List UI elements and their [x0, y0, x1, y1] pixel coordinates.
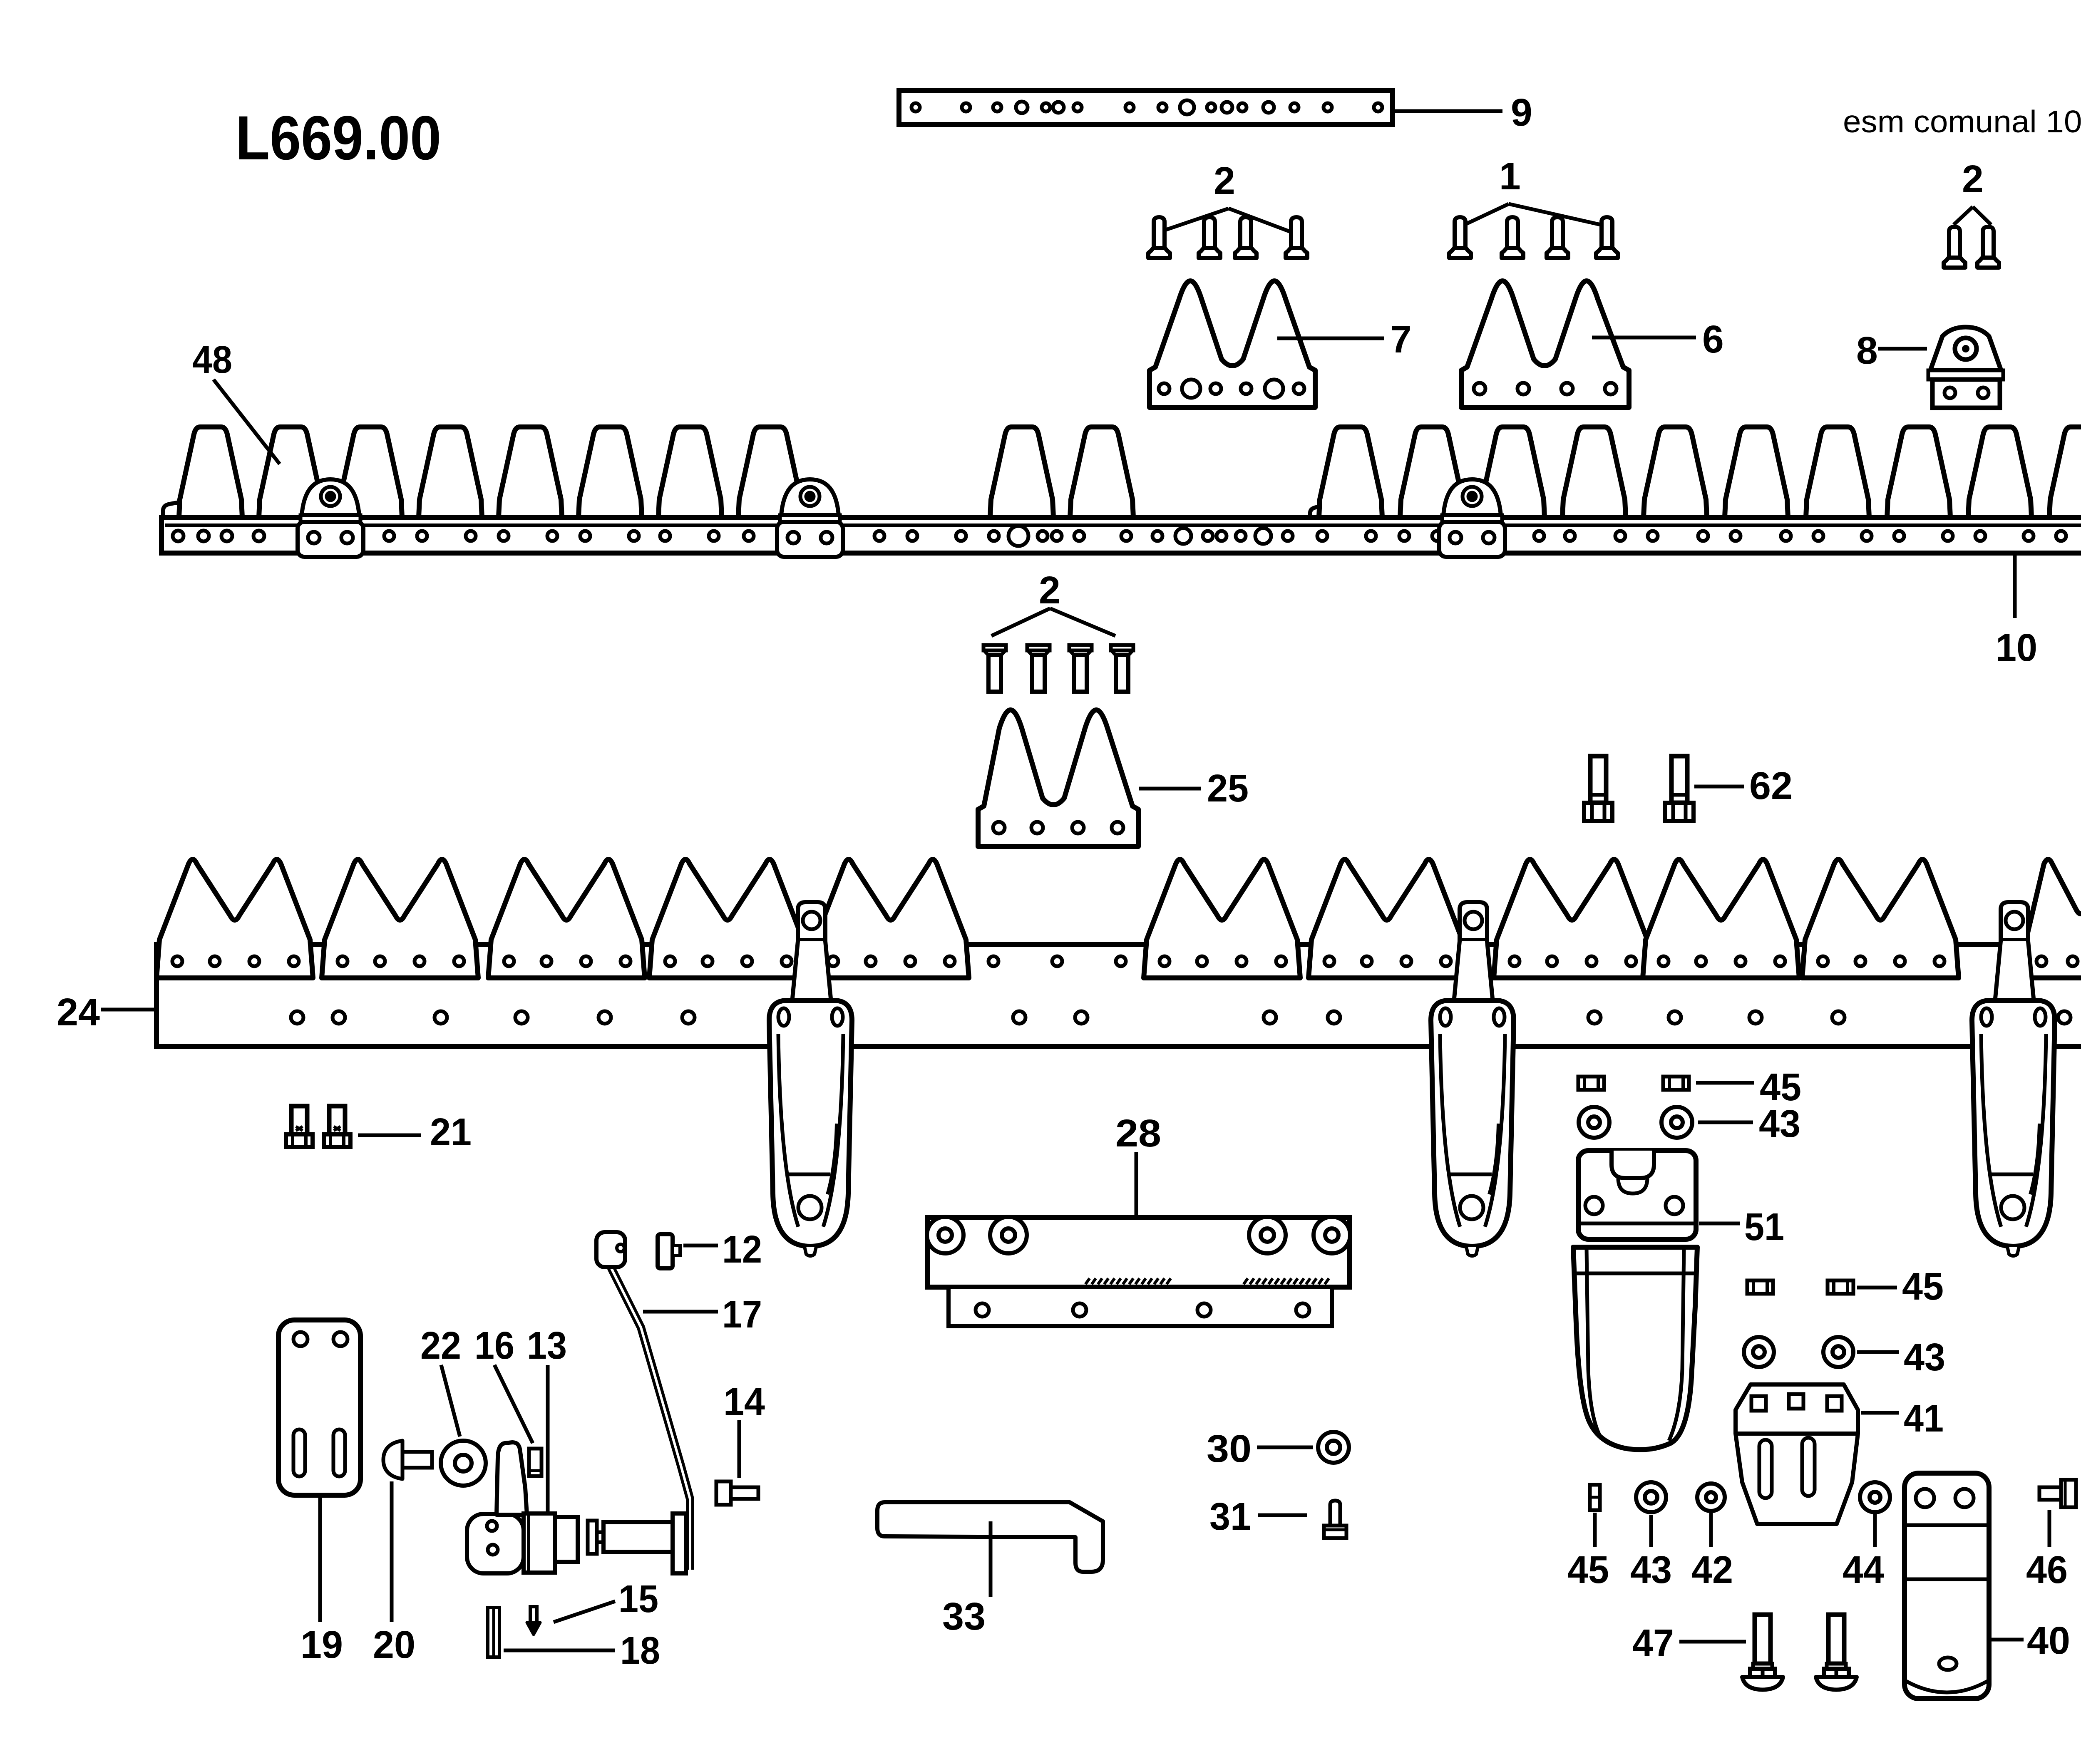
svg-text:47: 47 — [1632, 1621, 1674, 1665]
svg-text:14: 14 — [723, 1380, 765, 1423]
svg-text:8: 8 — [1856, 329, 1878, 372]
svg-text:40: 40 — [2027, 1619, 2070, 1662]
svg-text:33: 33 — [942, 1595, 986, 1638]
svg-text:12: 12 — [722, 1228, 762, 1271]
svg-text:43: 43 — [1759, 1102, 1800, 1145]
svg-text:22: 22 — [420, 1324, 461, 1367]
svg-text:41: 41 — [1904, 1397, 1944, 1440]
svg-text:43: 43 — [1904, 1335, 1945, 1379]
svg-text:7: 7 — [1390, 318, 1412, 361]
svg-text:42: 42 — [1691, 1548, 1733, 1591]
svg-text:2: 2 — [1962, 157, 1984, 201]
svg-text:31: 31 — [1209, 1495, 1251, 1538]
svg-text:9: 9 — [1511, 91, 1532, 134]
svg-text:25: 25 — [1207, 767, 1249, 810]
svg-text:62: 62 — [1749, 764, 1793, 807]
svg-text:L669.00: L669.00 — [236, 103, 441, 173]
svg-text:45: 45 — [1567, 1548, 1609, 1591]
svg-text:2: 2 — [1214, 159, 1235, 202]
svg-text:2: 2 — [1039, 568, 1060, 612]
svg-text:24: 24 — [57, 990, 100, 1034]
svg-text:48: 48 — [192, 338, 232, 381]
svg-text:esm comunal 102: esm comunal 102 — [1843, 104, 2081, 139]
svg-text:51: 51 — [1744, 1205, 1784, 1248]
svg-text:10: 10 — [1996, 626, 2037, 669]
svg-text:45: 45 — [1902, 1265, 1944, 1308]
svg-text:28: 28 — [1115, 1111, 1161, 1155]
svg-text:1: 1 — [1499, 154, 1521, 198]
svg-text:13: 13 — [527, 1324, 567, 1367]
svg-text:18: 18 — [620, 1629, 660, 1672]
svg-text:17: 17 — [722, 1293, 762, 1336]
svg-text:44: 44 — [1843, 1548, 1884, 1591]
svg-text:46: 46 — [2026, 1548, 2068, 1591]
svg-text:20: 20 — [373, 1623, 415, 1666]
svg-text:19: 19 — [300, 1623, 343, 1666]
svg-text:43: 43 — [1630, 1548, 1672, 1591]
svg-text:30: 30 — [1207, 1427, 1252, 1470]
svg-text:21: 21 — [430, 1110, 472, 1154]
svg-text:15: 15 — [618, 1577, 658, 1620]
svg-text:16: 16 — [474, 1324, 514, 1367]
svg-text:6: 6 — [1702, 318, 1724, 361]
